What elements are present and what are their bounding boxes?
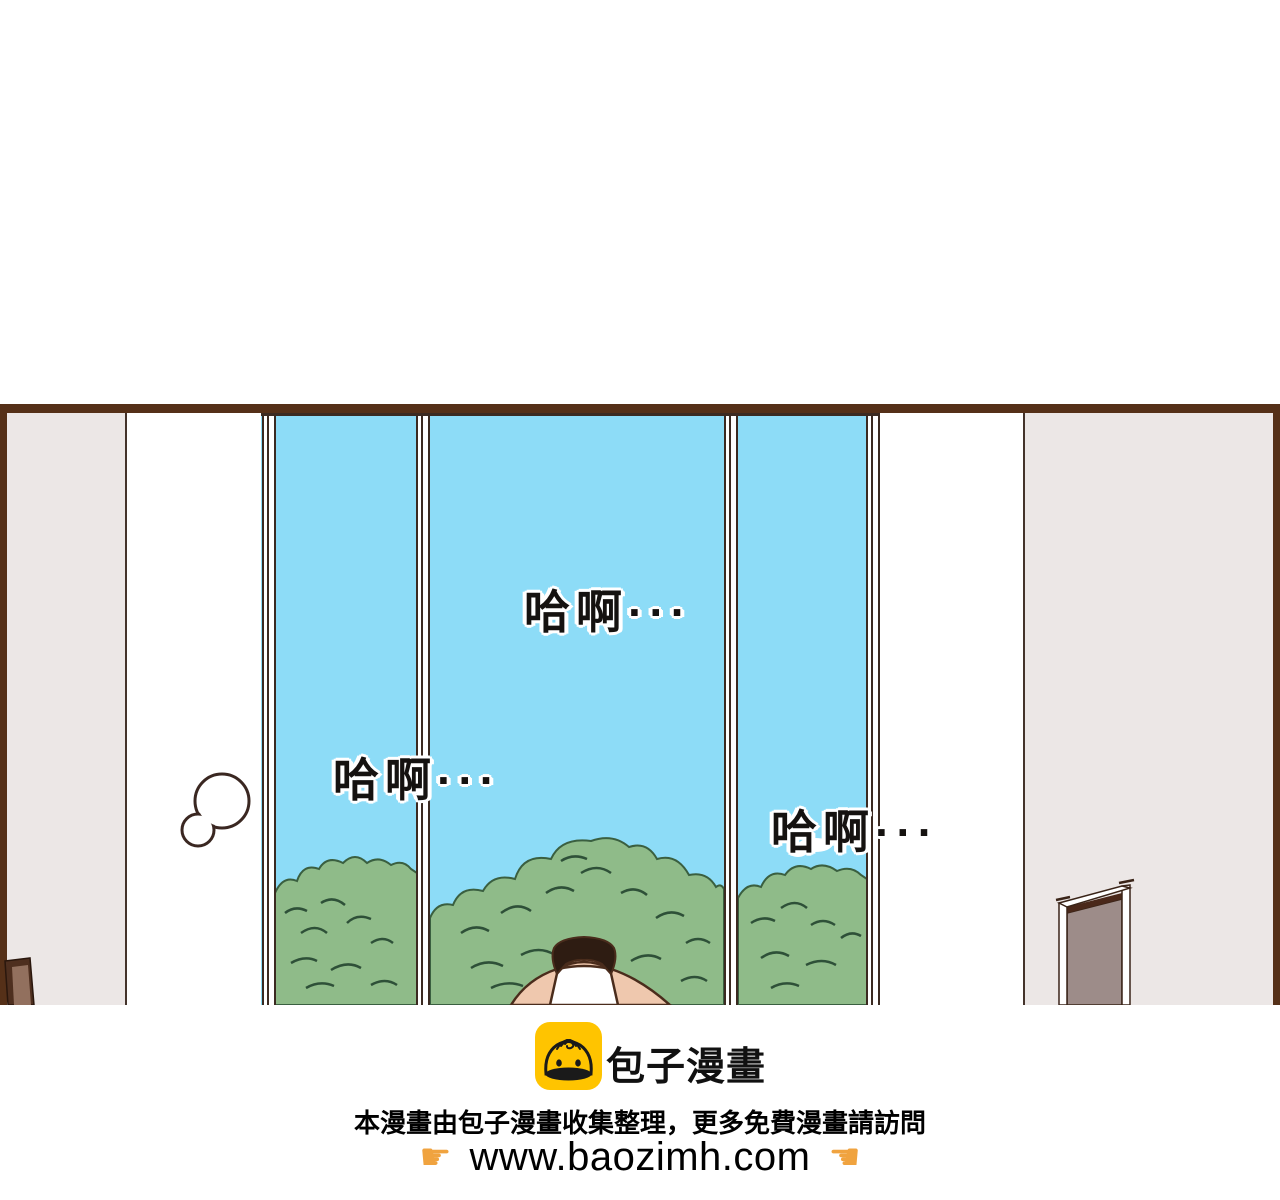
wall-corner-line (125, 413, 127, 1005)
wall-corner-line (1023, 413, 1025, 1005)
door-frame-left (1059, 902, 1067, 1005)
thought-bubble (168, 762, 260, 854)
brand-name: 包子漫畫 (606, 1036, 766, 1092)
window-frame (866, 413, 880, 1005)
left-gray-wall (7, 413, 126, 1005)
door-slab (1067, 899, 1122, 1005)
panel-border-left (0, 404, 7, 1005)
sfx-yawn-2: 哈啊··· (333, 744, 501, 810)
site-url-link[interactable]: www.baozimh.com (470, 1135, 811, 1180)
window-band (261, 413, 879, 1005)
panel-border-right (1273, 404, 1280, 1005)
window-frame (724, 413, 738, 1005)
sfx-yawn-1: 哈啊··· (524, 576, 692, 642)
panel-border-top (0, 404, 1280, 413)
left-white-wall (126, 413, 261, 1005)
door-frame-right (1122, 885, 1130, 1005)
trees-left (275, 857, 417, 1005)
window-scene (261, 413, 879, 1005)
site-url-row: ☛ www.baozimh.com ☚ (0, 1133, 1280, 1181)
doorway (1048, 878, 1140, 1005)
baozi-logo-icon (535, 1022, 602, 1090)
right-white-wall (879, 413, 1024, 1005)
comic-reader-page: 哈啊··· 哈啊··· 哈啊··· 包子漫畫 本漫畫由包子漫畫收集整理，更多免費… (0, 0, 1280, 1200)
cabinet-edge (2, 953, 42, 1005)
trees-right (738, 865, 867, 1005)
window-frame (416, 413, 430, 1005)
sfx-yawn-3: 哈啊··· (771, 796, 939, 862)
window-frame (262, 413, 276, 1005)
point-right-hand-icon: ☛ (419, 1139, 451, 1175)
window-top-rail (261, 413, 879, 416)
point-left-hand-icon: ☚ (828, 1139, 860, 1175)
